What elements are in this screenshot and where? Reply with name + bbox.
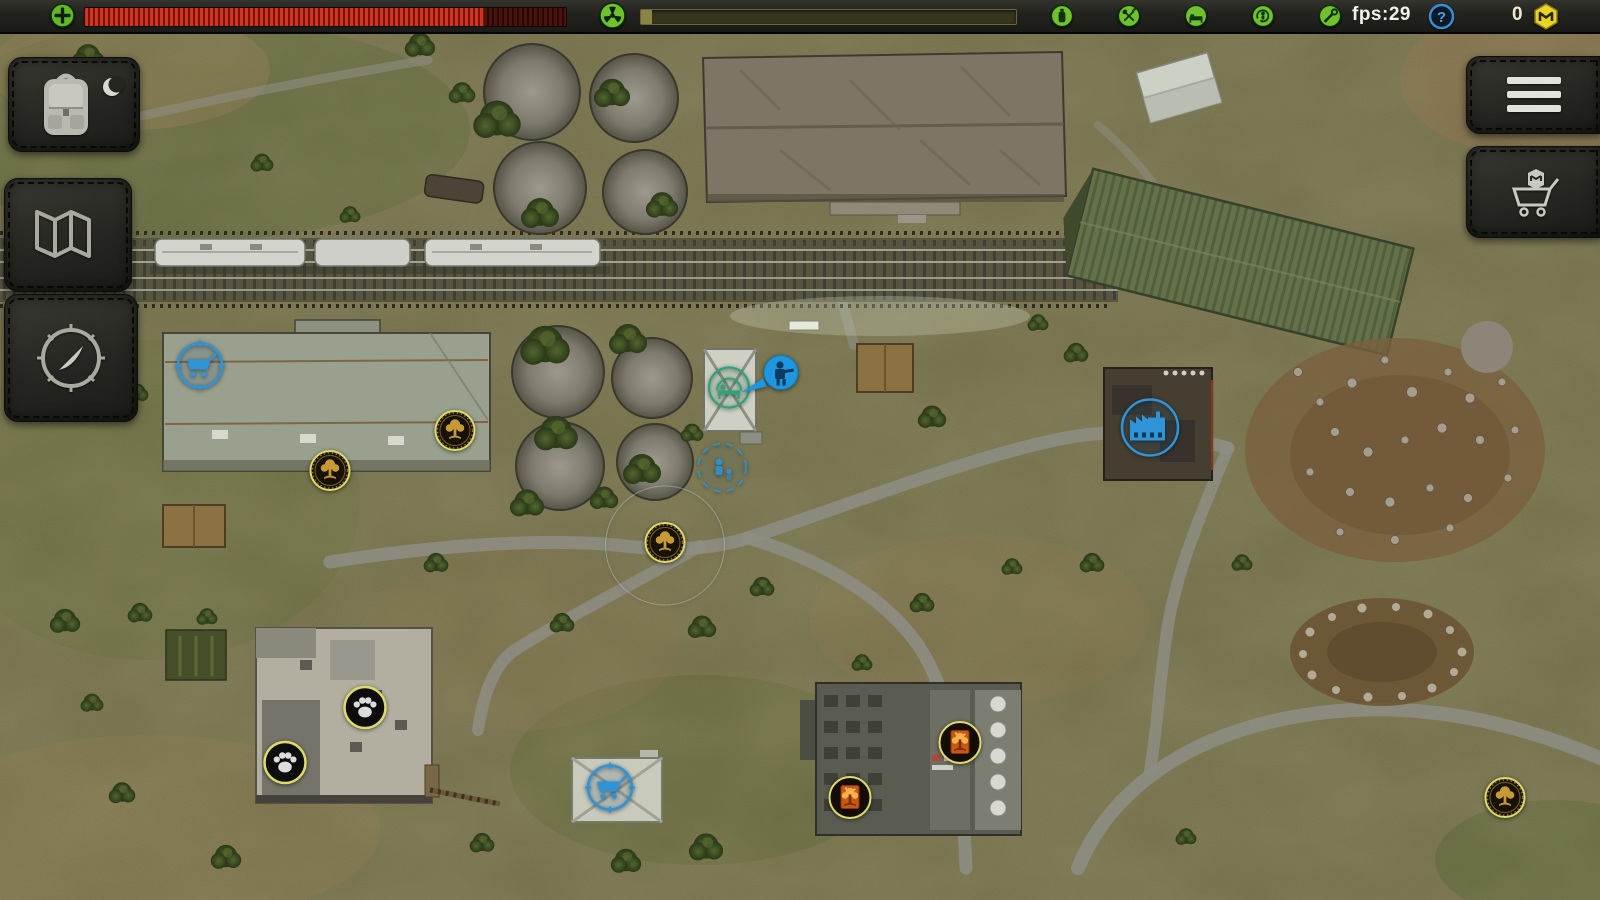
health-bar bbox=[84, 7, 567, 27]
fire-loot-medallion-icon bbox=[828, 776, 872, 820]
hamburger-menu-icon bbox=[1499, 71, 1569, 119]
help-icon[interactable]: ? bbox=[1428, 3, 1455, 30]
marker-player[interactable] bbox=[739, 351, 805, 410]
paw-icon bbox=[262, 740, 308, 786]
marker-loot-medallion[interactable] bbox=[309, 450, 351, 497]
marker-factory[interactable] bbox=[1115, 393, 1185, 468]
companion-icon bbox=[693, 439, 751, 497]
stamina-icon bbox=[1251, 4, 1275, 28]
fps-counter: fps:29 bbox=[1352, 4, 1411, 26]
game-screen: fps:29 ? 0 bbox=[0, 0, 1600, 900]
stone-circle bbox=[1290, 598, 1474, 706]
loot-medallion-icon bbox=[644, 522, 686, 564]
mail-count: 0 bbox=[1512, 4, 1523, 26]
marker-fire-loot-medallion[interactable] bbox=[828, 776, 872, 825]
drink-icon bbox=[1050, 4, 1074, 28]
inventory-button[interactable] bbox=[8, 57, 140, 152]
marker-loot-medallion[interactable] bbox=[434, 410, 476, 457]
marker-animal-paw[interactable] bbox=[262, 740, 308, 791]
warehouse-north bbox=[703, 52, 1066, 223]
fire-loot-medallion-icon bbox=[938, 721, 982, 765]
trader-cart-icon bbox=[583, 761, 637, 815]
player-balloon-icon bbox=[739, 351, 805, 405]
shack-west bbox=[163, 505, 225, 547]
backpack-icon bbox=[14, 65, 134, 145]
marker-loot-medallion[interactable] bbox=[644, 522, 686, 569]
bench bbox=[789, 321, 819, 330]
shop-button[interactable] bbox=[1466, 146, 1600, 238]
map-canvas[interactable] bbox=[0, 32, 1600, 900]
mail-monogram-icon[interactable] bbox=[1532, 2, 1560, 31]
paw-icon bbox=[342, 685, 388, 731]
garden-bed bbox=[166, 630, 226, 680]
hud-topbar: fps:29 ? 0 bbox=[0, 0, 1600, 34]
tools-icon bbox=[1318, 4, 1342, 28]
moon-icon bbox=[103, 76, 125, 96]
radiation-bar bbox=[640, 9, 1017, 25]
marker-loot-medallion[interactable] bbox=[1484, 777, 1526, 824]
marker-animal-paw[interactable] bbox=[342, 685, 388, 736]
loot-medallion-icon bbox=[1484, 777, 1526, 819]
radiation-bar-fill bbox=[641, 10, 652, 24]
compass-button[interactable] bbox=[4, 294, 138, 422]
loot-medallion-icon bbox=[309, 450, 351, 492]
trader-cart-icon bbox=[173, 339, 227, 393]
svg-text:?: ? bbox=[1437, 9, 1446, 26]
loot-medallion-icon bbox=[434, 410, 476, 452]
factory-icon bbox=[1115, 393, 1185, 463]
health-cross-icon bbox=[50, 3, 75, 28]
marker-trader-cart[interactable] bbox=[583, 761, 637, 820]
marker-fire-loot-medallion[interactable] bbox=[938, 721, 982, 770]
radiation-icon bbox=[599, 2, 626, 29]
train bbox=[150, 239, 610, 274]
health-bar-fill bbox=[85, 8, 484, 26]
world-map-button[interactable] bbox=[4, 178, 132, 292]
shop-cart-icon bbox=[1498, 159, 1570, 225]
menu-button[interactable] bbox=[1466, 56, 1600, 134]
map-icon bbox=[25, 200, 111, 270]
marker-trader-cart[interactable] bbox=[173, 339, 227, 398]
game-map[interactable] bbox=[0, 32, 1600, 900]
health-bar-empty bbox=[484, 8, 566, 26]
shack-north bbox=[857, 344, 913, 392]
sleep-icon bbox=[1184, 4, 1208, 28]
food-icon bbox=[1117, 4, 1141, 28]
marker-companion[interactable] bbox=[693, 439, 751, 502]
compass-icon bbox=[29, 316, 113, 400]
